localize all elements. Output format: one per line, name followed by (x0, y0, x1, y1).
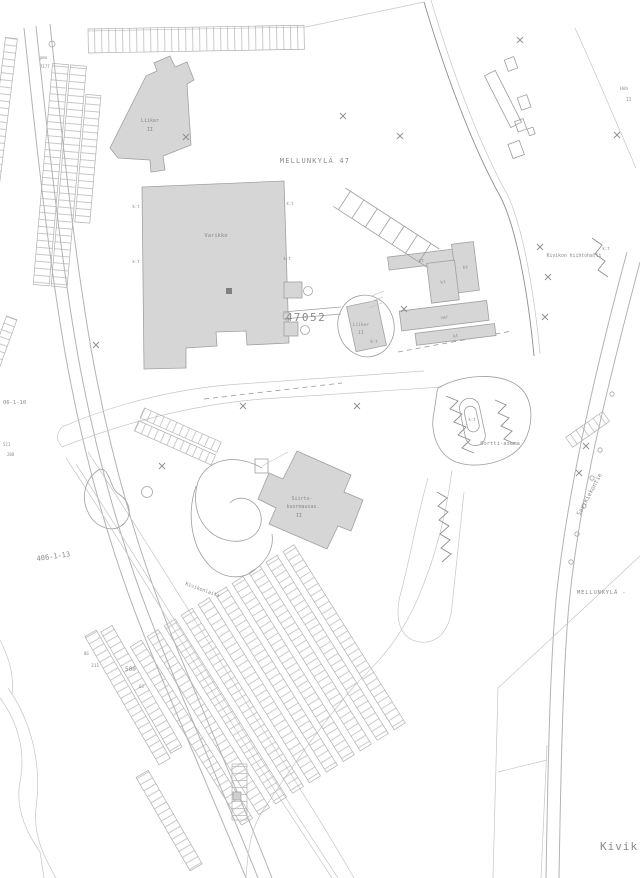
label-num-500: 500 (125, 666, 136, 673)
bottom-center-hut (233, 792, 241, 800)
huts-northeast (484, 57, 535, 159)
top-parking-band (88, 25, 304, 53)
hut (504, 57, 518, 72)
label-liiker-north-1: Liiker (141, 118, 159, 124)
label-kt-colon: k:t (132, 259, 140, 264)
label-hiihtohalli: Kivikon hiihtohalli (547, 253, 602, 259)
hatch-strip (0, 37, 17, 301)
label-num-521: 521 (3, 442, 11, 447)
pond-circle (142, 487, 153, 498)
road-circle (569, 560, 573, 564)
label-sortti-asema: Sortti-asema (480, 441, 520, 447)
hatch-strip (566, 412, 610, 448)
label-num-208: 208 (7, 452, 15, 457)
south-parking-lot (130, 545, 405, 825)
lower-left-hatch-2 (136, 770, 202, 871)
varikko-annex-2 (284, 322, 298, 336)
label-street-kivikonlaita: Kivikonlaita (184, 581, 220, 599)
far-left-ladder-mid (0, 316, 17, 447)
wetland-lines (0, 640, 56, 878)
trellis-structure (333, 188, 439, 267)
sortti-ramp-loop (398, 478, 464, 642)
label-plot-number: 47052 (286, 311, 327, 324)
label-kt-colon: k:t (468, 417, 476, 422)
ramp-tower (255, 459, 268, 473)
label-siirto-3: II (296, 513, 302, 519)
label-siirto-1: Siirto- (291, 496, 312, 502)
label-parcel-code-1: 406-1-13 (36, 550, 71, 563)
road-circle (610, 392, 614, 396)
label-num-86: 86 (84, 651, 89, 656)
label-kt-colon: k:t (283, 256, 291, 261)
label-kt: kt (453, 333, 459, 340)
hut (508, 140, 524, 158)
varikko-annex-1 (284, 282, 302, 298)
label-kt-colon: k:t (370, 339, 378, 344)
label-kt-colon: k:t (132, 204, 140, 209)
ramp-spiral (191, 460, 272, 577)
parcel-lines-bottom-right (493, 556, 640, 878)
label-siirto-2: kuormausas. (286, 504, 319, 510)
kidney-loop (84, 469, 129, 529)
site-plan-map: kt kt kt var kt MELLUNKYLÄ 47 47052 Vari (0, 0, 640, 878)
varikko-dark-marker (226, 288, 232, 294)
building-cluster-east: kt kt kt var kt (387, 240, 496, 347)
label-kt-colon: k:t (602, 246, 610, 251)
far-left-ladder-top (0, 37, 17, 301)
label-liiker-central-1: Liiker (353, 322, 370, 328)
label-parcel-code-2: 06-1-10 (3, 400, 26, 406)
center-parking-strips (134, 408, 221, 465)
label-district-title: MELLUNKYLÄ 47 (280, 156, 350, 165)
sortti-outer-loop (433, 376, 531, 465)
varikko-silo-2 (301, 326, 310, 335)
hut (517, 95, 531, 111)
varikko-silo-1 (304, 287, 313, 296)
hut (484, 70, 521, 127)
label-var: var (440, 315, 449, 321)
zigzag-walls (437, 396, 515, 562)
label-kt: kt (462, 264, 468, 271)
label-num-7177: 7177 (40, 64, 50, 69)
right-road-ladder (566, 412, 610, 448)
hut (527, 127, 535, 136)
label-kt-colon: k:t (286, 201, 294, 206)
hatch-strip (136, 770, 202, 871)
label-num-311: 311 (91, 663, 99, 669)
savikiekontie-road-lines (546, 252, 640, 878)
label-district-right: MELLUNKYLÄ - (577, 589, 626, 596)
label-num-pmo: pmo (40, 55, 48, 60)
trellis-lines (333, 188, 439, 267)
label-hoh-1: Höh (620, 86, 628, 92)
label-building-varikko: Varikko (204, 233, 227, 239)
map-page: kt kt kt var kt MELLUNKYLÄ 47 47052 Vari (0, 0, 640, 878)
building-liiker-north (110, 56, 194, 172)
label-liiker-north-2: II (147, 127, 153, 133)
road-circle (598, 448, 602, 452)
label-area-kivik: Kivik (600, 840, 638, 853)
label-num-63: 63 (139, 684, 144, 689)
label-kt: kt (440, 279, 446, 286)
label-hoh-2: II (626, 97, 632, 103)
center-loop-road (58, 371, 443, 447)
building-varikko (142, 181, 289, 369)
hatch-strip (0, 316, 17, 447)
label-liiker-central-2: II (358, 330, 364, 336)
